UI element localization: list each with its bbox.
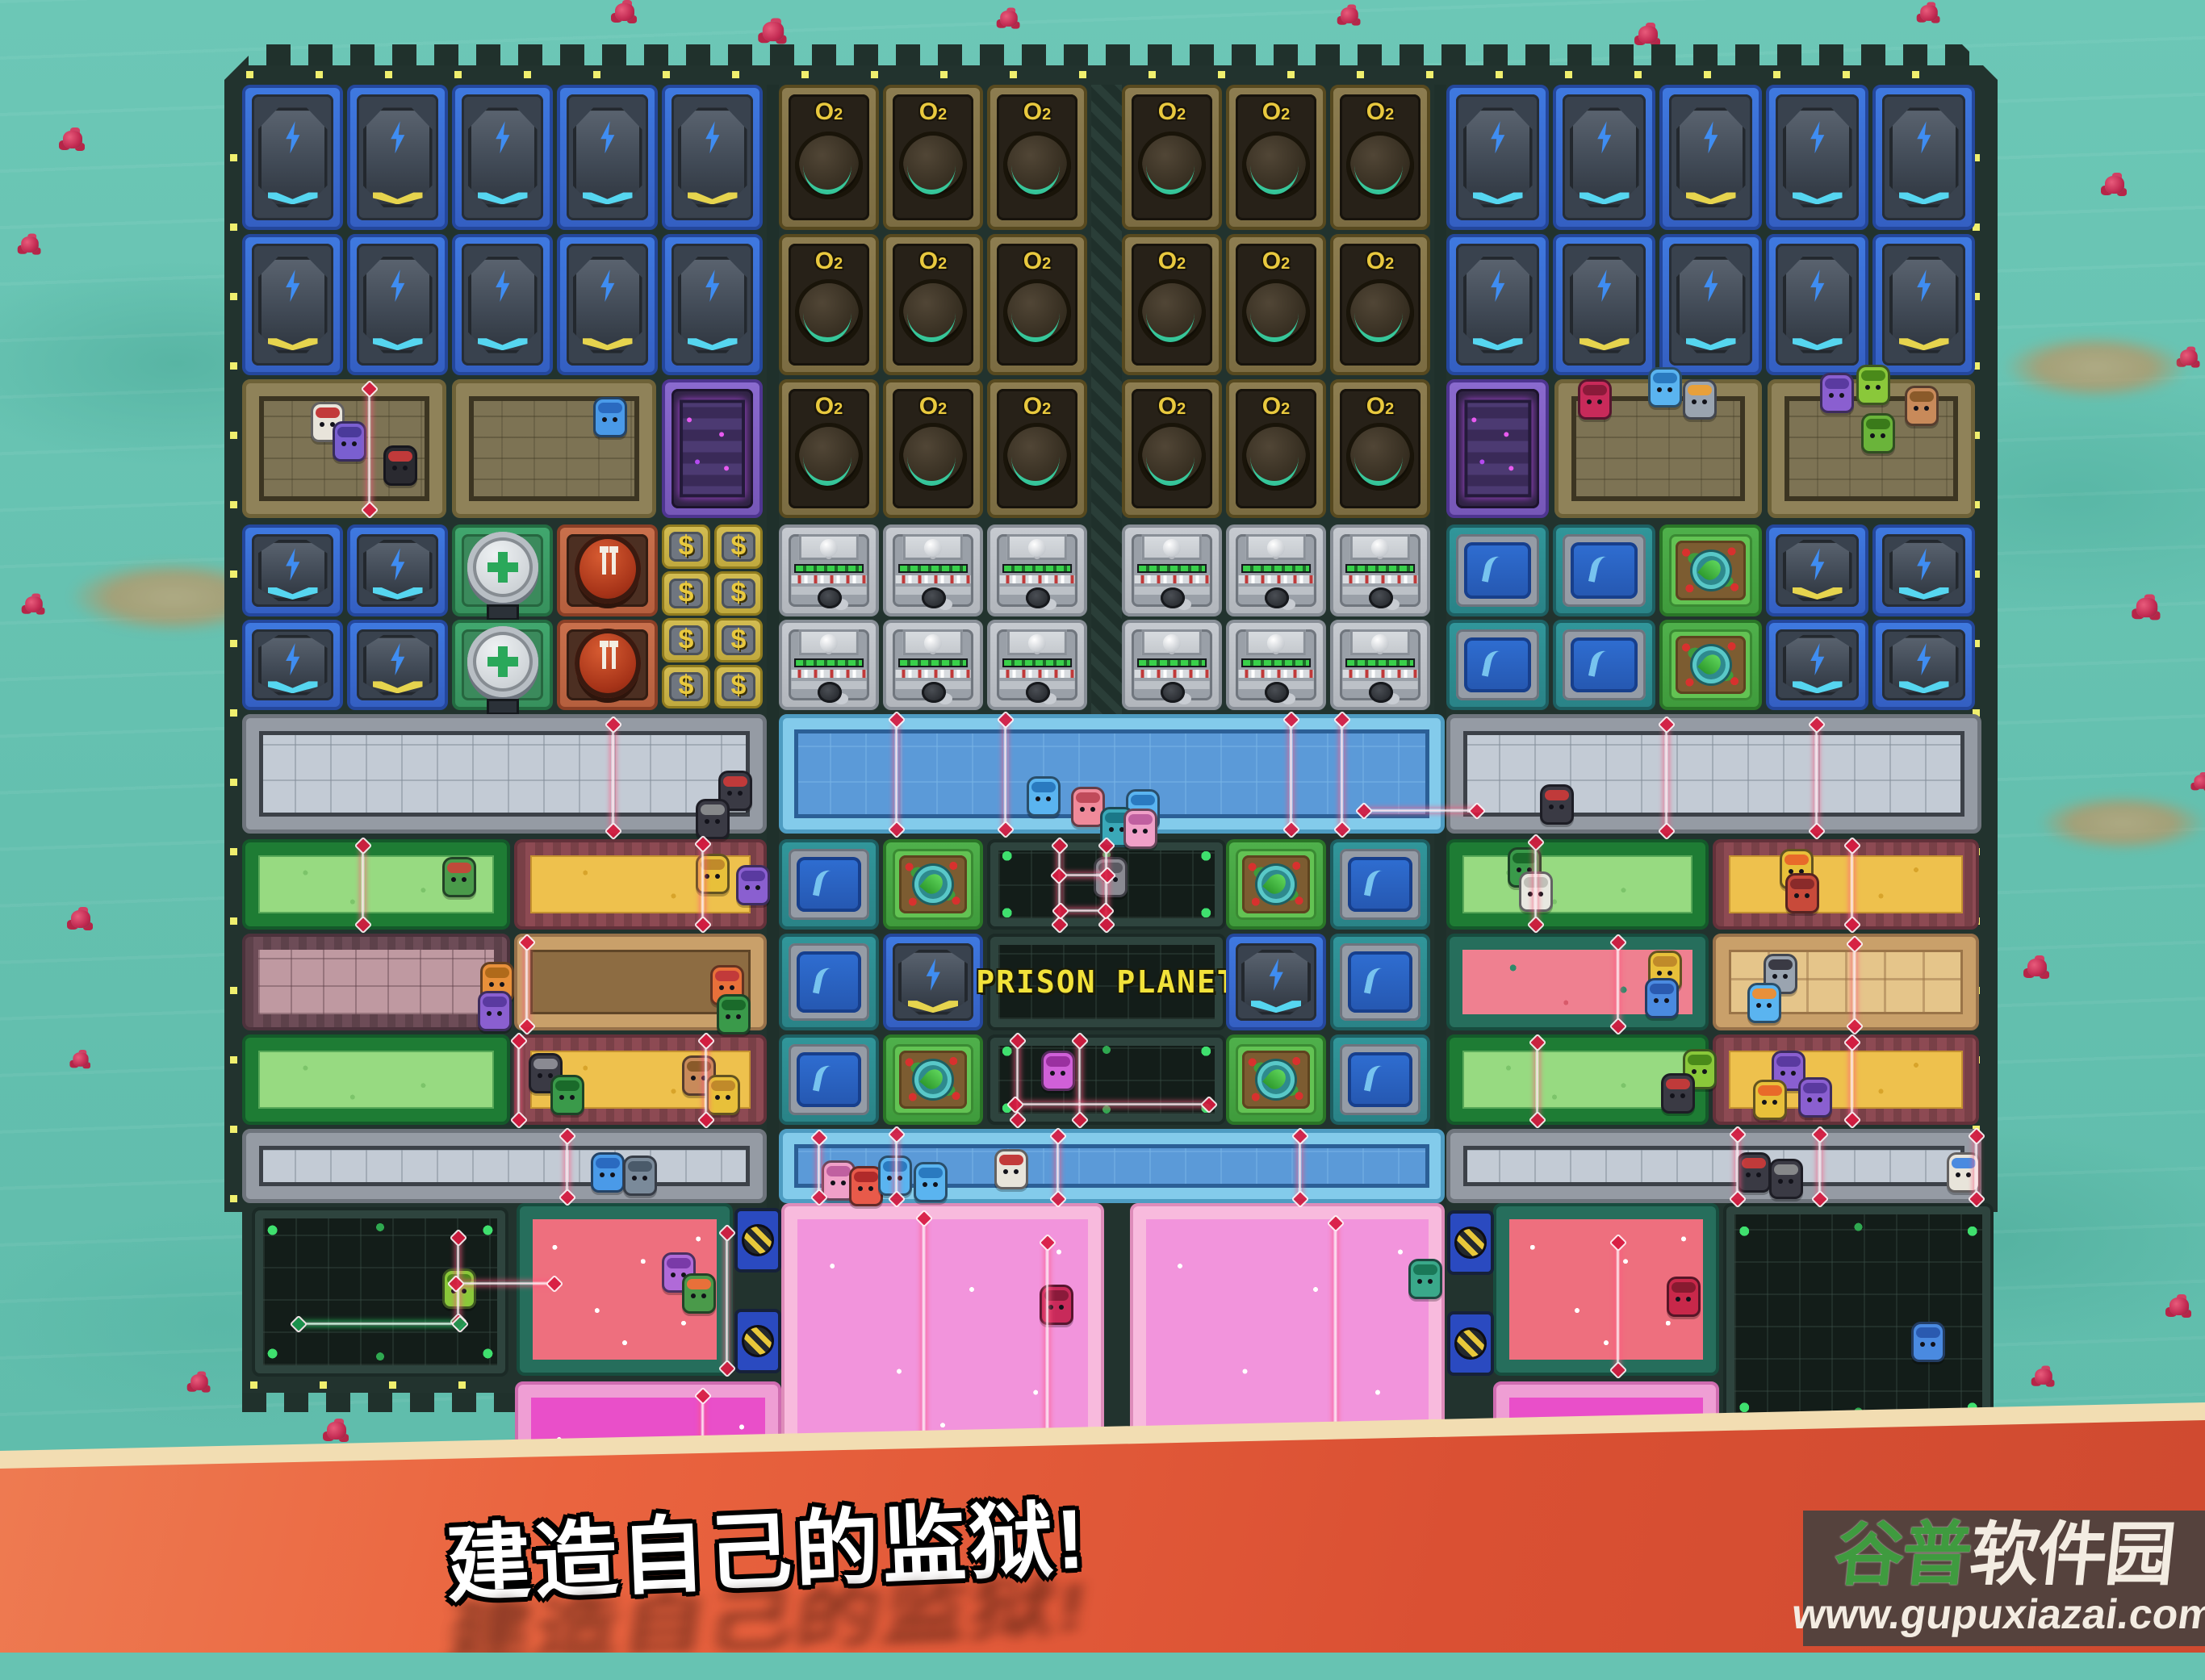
tile-oxygen-machine[interactable]: O2 [1330,234,1430,375]
alien-character[interactable] [696,799,730,839]
tile-toilet[interactable] [1122,524,1222,616]
coral-decoration [1000,10,1018,27]
wall-lights-top [246,71,1965,78]
tile-power-generator[interactable] [1872,620,1975,710]
medical-cross-icon [487,646,518,677]
room-grass-yard[interactable] [242,1034,510,1125]
tile-toilet[interactable] [883,524,983,616]
oxygen-machine-icon [1003,279,1071,347]
alien-character[interactable] [1737,1152,1771,1193]
alien-character[interactable] [550,1075,584,1115]
tile-toilet[interactable] [1226,620,1326,710]
hazard-door-tile[interactable] [734,1208,781,1273]
wall-lights-left [230,97,237,1202]
coral-decoration [190,1374,208,1390]
laser-beam [1003,720,1007,830]
tile-oxygen-machine[interactable]: O2 [1226,85,1326,230]
plant-fountain-icon [1257,1061,1295,1098]
laser-beam [565,1136,569,1197]
laser-beam [1059,873,1107,877]
coral-decoration [63,131,82,148]
watermark-brand: 谷普软件园 [1831,1519,2177,1591]
alien-character[interactable] [442,857,476,897]
hazard-door-tile[interactable] [1447,1210,1494,1275]
tile-power-generator[interactable] [1872,524,1975,616]
status-bar [1241,564,1311,573]
water-pool-icon [1464,637,1531,692]
oxygen-label: O2 [1366,100,1394,124]
room-pink-tile-yard[interactable] [242,934,510,1030]
alien-character[interactable] [333,421,366,462]
room-dark-cellblock[interactable] [1723,1203,1994,1436]
tile-water-pool[interactable] [1446,524,1549,616]
coral-decoration [2027,959,2047,976]
tile-oxygen-machine[interactable]: O2 [1226,379,1326,518]
tile-power-generator[interactable] [347,620,448,710]
oxygen-label: O2 [815,100,843,124]
room-corridor-gray[interactable] [1446,714,1981,834]
coral-decoration [25,596,43,612]
tile-oxygen-machine[interactable]: O2 [1330,379,1430,518]
dollar-icon: $ [731,530,747,562]
alien-character[interactable] [1408,1259,1442,1299]
coral-decoration [2105,176,2124,194]
laser-beam [701,844,705,925]
control-panel [1239,670,1314,678]
oxygen-machine-icon [795,132,863,199]
laser-beam [456,1281,554,1285]
alien-character[interactable] [1041,1051,1075,1091]
toilet-tank-icon [1246,534,1306,560]
status-bar [1137,658,1207,667]
tile-power-generator[interactable] [347,524,448,616]
generator-machine-icon [468,107,538,207]
oxygen-label: O2 [1262,395,1290,419]
coral-decoration [2035,1369,2052,1385]
oxygen-machine-icon [899,279,967,347]
tile-toilet[interactable] [1226,524,1326,616]
alien-character[interactable] [1753,1080,1787,1120]
tile-oxygen-machine[interactable]: O2 [779,234,879,375]
control-panel [1000,575,1075,583]
toilet-tank-icon [1007,534,1067,560]
toilet-tank-icon [903,629,963,654]
storage-machine-icon [680,399,746,497]
medical-machine-icon [467,626,538,697]
tile-toilet[interactable] [1330,620,1430,710]
oxygen-label: O2 [919,249,947,274]
coral-decoration [2169,1298,2189,1315]
tile-oxygen-machine[interactable]: O2 [779,85,879,230]
control-panel [792,670,867,678]
plant-fountain-icon [1692,646,1730,683]
laser-beam [817,1138,821,1197]
laser-beam [361,846,365,925]
laser-beam [894,720,898,830]
tile-power-generator[interactable] [1226,934,1326,1030]
tile-toilet[interactable] [883,620,983,710]
room-yellow-yard[interactable] [1713,839,1979,930]
toilet-seat-icon [1026,682,1050,703]
tile-water-pool[interactable] [779,839,879,930]
laser-beam [1045,1243,1049,1436]
tile-water-pool[interactable] [1330,1034,1430,1125]
oxygen-machine-icon [1003,423,1071,491]
room-corridor-gray[interactable] [242,714,767,834]
tile-power-generator[interactable] [452,85,553,230]
tile-power-generator[interactable] [1766,234,1868,375]
laser-beam [894,1135,898,1199]
tile-toilet[interactable] [987,524,1087,616]
status-bar [1002,658,1072,667]
laser-beam [1340,720,1344,830]
water-pool-icon [797,1052,861,1107]
oxygen-machine-icon [1346,279,1414,347]
tile-medical-machine[interactable] [452,620,553,710]
tile-power-generator[interactable] [662,85,763,230]
tile-toilet[interactable] [987,620,1087,710]
plant-fountain-icon [914,866,952,903]
alien-character[interactable] [1578,379,1612,420]
tile-power-generator[interactable] [1766,85,1868,230]
tile-water-pool[interactable] [1330,934,1430,1030]
water-pool-icon [797,857,861,912]
water-pool-icon [1464,542,1531,599]
coral-decoration [71,910,90,928]
medical-machine-icon [467,532,538,603]
laser-beam [1735,1135,1739,1199]
tile-medical-machine[interactable] [452,524,553,616]
tile-power-generator[interactable] [1659,85,1762,230]
laser-beam [1616,942,1620,1026]
oxygen-label: O2 [1158,395,1186,419]
status-bar [1345,564,1415,573]
laser-beam [1616,1243,1620,1370]
alien-character[interactable] [1661,1073,1695,1114]
tile-water-pool[interactable] [1553,524,1655,616]
laser-beam [611,725,615,831]
generator-machine-icon [573,107,642,207]
section-divider [767,85,779,1210]
oxygen-label: O2 [1023,100,1051,124]
coral-decoration [1920,5,1938,21]
toilet-tank-icon [1246,629,1306,654]
storage-machine-icon [1464,399,1531,497]
tile-toilet[interactable] [779,524,879,616]
tile-oxygen-machine[interactable]: O2 [779,379,879,518]
sand-patch [2003,335,2189,399]
coral-decoration [763,22,784,41]
section-divider [1434,85,1446,1210]
tile-power-generator[interactable] [1553,85,1655,230]
tile-power-generator[interactable] [347,85,448,230]
tile-power-generator[interactable] [662,234,763,375]
oxygen-label: O2 [1023,249,1051,274]
tile-power-generator[interactable] [242,234,343,375]
tile-food-machine[interactable] [557,620,658,710]
alien-character[interactable] [1905,386,1939,426]
tile-oxygen-machine[interactable]: O2 [987,379,1087,518]
status-bar [794,658,864,667]
tile-power-generator[interactable] [1766,620,1868,710]
tile-power-generator[interactable] [557,234,658,375]
tile-oxygen-machine[interactable]: O2 [883,379,983,518]
toilet-tank-icon [1350,629,1410,654]
tile-garden-plot[interactable] [1226,1034,1326,1125]
coral-decoration [615,3,634,21]
oxygen-machine-icon [1242,279,1310,347]
leaf-icon [919,1065,947,1093]
alien-character[interactable] [1667,1277,1701,1317]
alien-character[interactable] [623,1156,657,1196]
water-pool-icon [797,951,861,1013]
watermark-url: www.gupuxiazai.com [1789,1592,2205,1638]
tile-water-pool[interactable] [1446,620,1549,710]
laser-beam [1061,909,1106,913]
alien-character[interactable] [593,397,627,437]
dollar-icon: $ [731,577,747,608]
alien-character[interactable] [1645,978,1679,1018]
watermark-brand-white: 软件园 [1966,1516,2178,1594]
tile-power-generator[interactable] [242,524,343,616]
laser-beam [1298,1136,1302,1199]
tile-power-generator[interactable] [557,85,658,230]
alien-character[interactable] [1911,1322,1945,1362]
coral-decoration [21,236,39,253]
leaf-icon [1697,650,1725,678]
alien-character[interactable] [1747,983,1781,1023]
tile-garden-plot[interactable] [1226,839,1326,930]
alien-character[interactable] [478,991,512,1031]
tile-power-generator[interactable] [1872,234,1975,375]
dollar-icon: $ [731,671,747,702]
hazard-door-tile[interactable] [1447,1311,1494,1376]
generator-machine-icon [1889,107,1959,207]
oxygen-label: O2 [919,100,947,124]
tile-storage-machine[interactable] [1446,379,1549,518]
room-corridor-gray[interactable] [242,1129,767,1203]
dollar-icon: $ [731,624,747,655]
tile-water-pool[interactable] [779,934,879,1030]
tile-money-machine[interactable]: $ [714,524,763,569]
tile-power-generator[interactable] [1553,234,1655,375]
alien-character[interactable] [383,445,417,486]
alien-character[interactable] [1123,809,1157,849]
alien-character[interactable] [706,1075,740,1115]
dollar-icon: $ [679,530,694,562]
coral-decoration [2136,598,2157,617]
tile-power-generator[interactable] [1446,234,1549,375]
game-screenshot: { "scene": { "title_text": "PRISON PLANE… [0,0,2205,1653]
toilet-tank-icon [903,534,963,560]
center-divider [1091,85,1122,714]
oxygen-machine-icon [1242,132,1310,199]
tile-oxygen-machine[interactable]: O2 [883,234,983,375]
oxygen-label: O2 [919,395,947,419]
generator-machine-icon [1783,107,1852,207]
generator-machine-icon [258,107,328,207]
tile-garden-plot[interactable] [1659,620,1762,710]
tile-garden-plot[interactable] [1659,524,1762,616]
food-machine-icon [575,534,641,604]
tile-money-machine[interactable]: $ [662,524,710,569]
tile-power-generator[interactable] [883,934,983,1030]
tile-oxygen-machine[interactable]: O2 [987,234,1087,375]
tile-food-machine[interactable] [557,524,658,616]
tile-power-generator[interactable] [1872,85,1975,230]
toilet-tank-icon [1350,534,1410,560]
room-title-cell[interactable]: PRISON PLANET [987,934,1226,1030]
control-panel [1000,670,1075,678]
food-machine-icon [575,629,641,698]
water-pool-icon [1571,542,1638,599]
laser-beam [1333,1223,1337,1456]
laser-beam [517,1041,521,1120]
tile-oxygen-machine[interactable]: O2 [1122,85,1222,230]
laser-beam [1056,1136,1060,1199]
toilet-seat-icon [1265,682,1289,703]
toilet-tank-icon [1007,629,1067,654]
leaf-icon [1262,870,1290,897]
laser-beam [1077,1041,1082,1120]
oxygen-machine-icon [899,423,967,491]
caption-wrap: 建造自己的监狱! 建造自己的监狱! [337,1465,1196,1623]
tile-oxygen-machine[interactable]: O2 [987,85,1087,230]
tile-power-generator[interactable] [1766,524,1868,616]
coral-decoration [73,1052,88,1067]
oxygen-machine-icon [795,279,863,347]
oxygen-machine-icon [1346,132,1414,199]
tile-power-generator[interactable] [1659,234,1762,375]
laser-beam [1015,1102,1209,1106]
tile-water-pool[interactable] [779,1034,879,1125]
alien-character[interactable] [1820,373,1854,413]
laser-beam [1664,725,1668,831]
wall-lights-bottom-left [250,1381,508,1389]
dollar-icon: $ [679,624,694,655]
tile-storage-machine[interactable] [662,379,763,518]
tile-toilet[interactable] [1122,620,1222,710]
status-bar [1345,658,1415,667]
water-pool-icon [1571,637,1638,692]
leaf-icon [919,870,947,897]
control-panel [896,670,971,678]
oxygen-label: O2 [1158,100,1186,124]
laser-beam [299,1322,460,1326]
oxygen-label: O2 [1023,395,1051,419]
leaf-icon [1262,1065,1290,1093]
tile-oxygen-machine[interactable]: O2 [1122,379,1222,518]
tile-money-machine[interactable]: $ [662,618,710,662]
tile-money-machine[interactable]: $ [662,571,710,616]
status-bar [1002,564,1072,573]
tile-garden-plot[interactable] [883,839,983,930]
toilet-tank-icon [1142,629,1202,654]
generator-machine-icon [1570,107,1639,207]
tile-money-machine[interactable]: $ [714,618,763,662]
generator-machine-icon [1676,107,1746,207]
alien-character[interactable] [717,994,751,1034]
tile-water-pool[interactable] [1553,620,1655,710]
toilet-tank-icon [799,534,859,560]
alien-character[interactable] [1798,1077,1832,1118]
oxygen-machine-icon [795,423,863,491]
alien-character[interactable] [1027,776,1061,817]
alien-character[interactable] [1861,413,1895,453]
tile-power-generator[interactable] [347,234,448,375]
alien-character[interactable] [1785,873,1819,913]
alien-character[interactable] [994,1149,1028,1189]
hazard-door-tile[interactable] [734,1309,781,1373]
laser-beam [1974,1136,1978,1199]
laser-beam [1852,944,1856,1026]
laser-beam [1850,846,1854,925]
tile-power-generator[interactable] [242,620,343,710]
tile-toilet[interactable] [779,620,879,710]
alien-character[interactable] [1540,784,1574,825]
tile-power-generator[interactable] [1446,85,1549,230]
watermark-badge: 谷普软件园 www.gupuxiazai.com [1803,1511,2205,1646]
toilet-tank-icon [1142,534,1202,560]
room-security-cell[interactable] [987,1034,1226,1125]
tile-power-generator[interactable] [242,85,343,230]
oxygen-machine-icon [899,132,967,199]
alien-character[interactable] [736,865,770,905]
laser-beam [1814,725,1818,831]
alien-character[interactable] [1769,1159,1803,1199]
alien-character[interactable] [682,1273,716,1314]
medical-cross-icon [487,552,518,583]
room-corridor-brown[interactable] [452,379,656,518]
oxygen-machine-icon [1242,423,1310,491]
tile-money-machine[interactable]: $ [714,665,763,708]
laser-beam [1535,1043,1539,1120]
alien-character[interactable] [591,1152,625,1193]
oxygen-label: O2 [1262,100,1290,124]
alien-character[interactable] [914,1162,948,1202]
alien-character[interactable] [1683,379,1717,420]
room-corridor-gray[interactable] [1446,1129,1981,1203]
status-bar [898,658,968,667]
tile-money-machine[interactable]: $ [662,665,710,708]
laser-beam [1533,842,1538,925]
control-panel [1239,575,1314,583]
laser-beam [525,942,529,1026]
laser-beam [1364,809,1477,813]
oxygen-label: O2 [815,249,843,274]
oxygen-label: O2 [815,395,843,419]
tile-power-generator[interactable] [452,234,553,375]
alien-character[interactable] [1648,367,1682,407]
tile-water-pool[interactable] [1330,839,1430,930]
control-panel [1343,575,1418,583]
toilet-tank-icon [799,629,859,654]
tile-toilet[interactable] [1330,524,1430,616]
tile-oxygen-machine[interactable]: O2 [1330,85,1430,230]
tile-oxygen-machine[interactable]: O2 [1226,234,1326,375]
tile-oxygen-machine[interactable]: O2 [883,85,983,230]
tile-money-machine[interactable]: $ [714,571,763,616]
room-grass-yard[interactable] [1446,839,1709,930]
status-bar [1137,564,1207,573]
generator-machine-icon [1463,107,1533,207]
coral-decoration [2194,775,2205,789]
control-panel [1135,670,1210,678]
alien-character[interactable] [1856,365,1890,405]
tile-oxygen-machine[interactable]: O2 [1122,234,1222,375]
tile-garden-plot[interactable] [883,1034,983,1125]
control-panel [1135,575,1210,583]
